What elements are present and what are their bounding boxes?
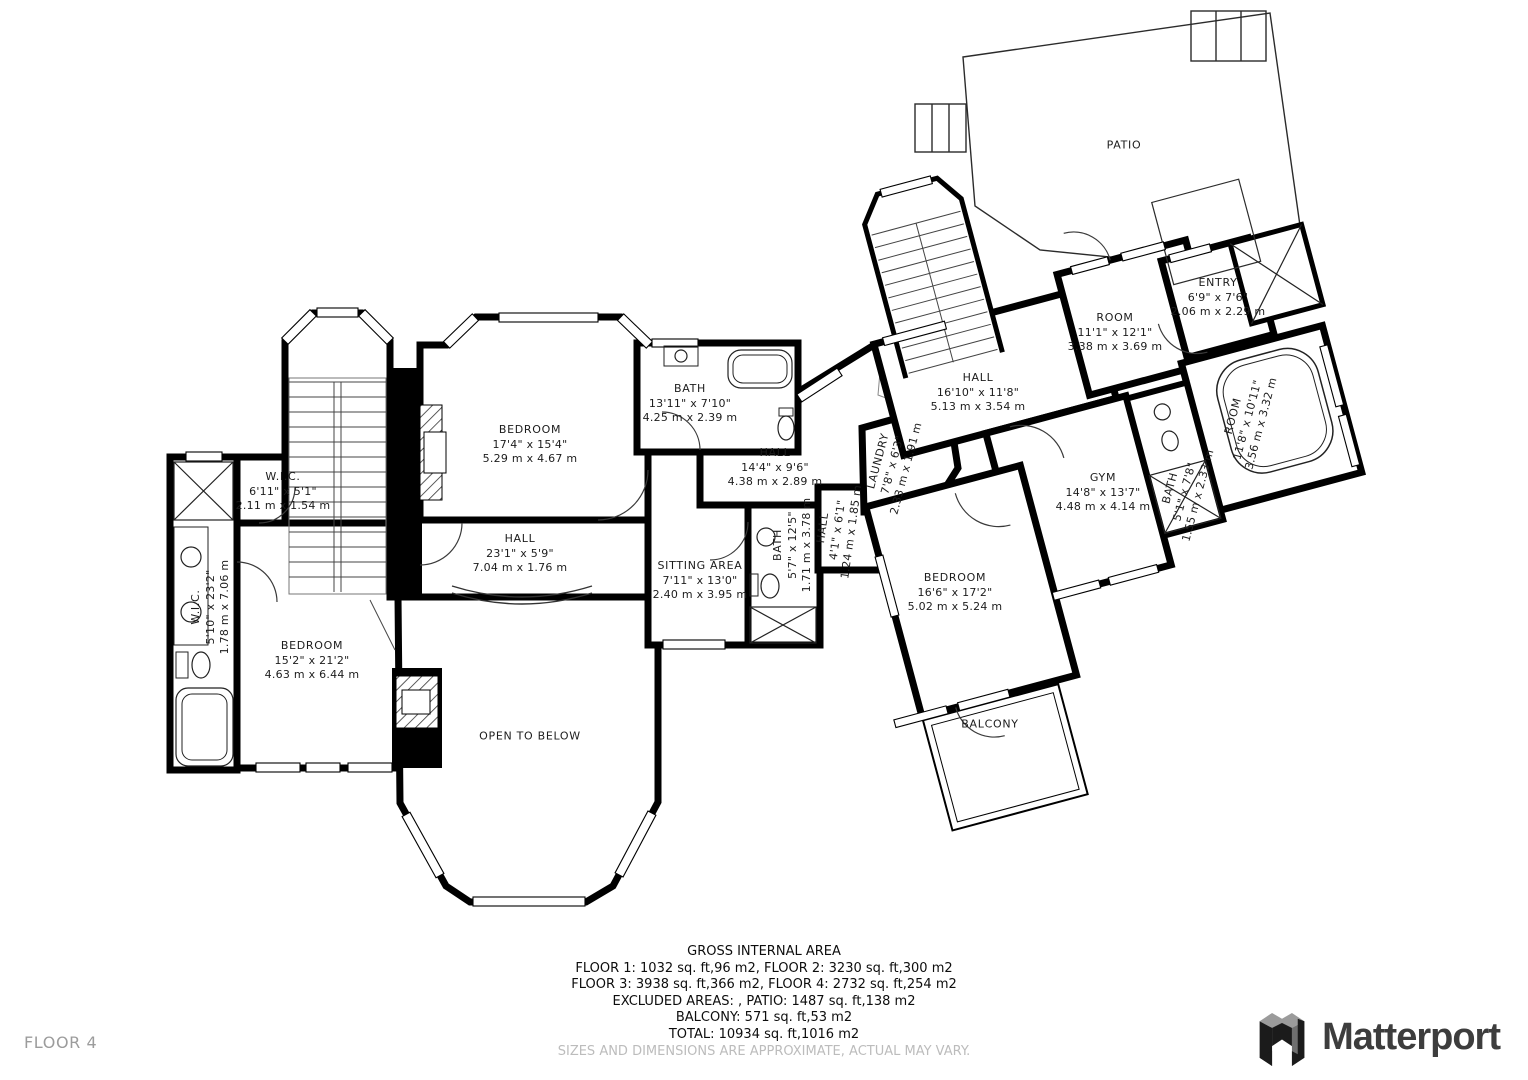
area-summary-line: BALCONY: 571 sq. ft,53 m2 [558,1010,971,1027]
area-summary: GROSS INTERNAL AREA FLOOR 1: 1032 sq. ft… [558,944,971,1060]
patio-outline [915,11,1303,262]
floor-plan-drawing [0,0,1528,1080]
matterport-logo-icon [1254,1008,1310,1066]
area-summary-line: FLOOR 3: 3938 sq. ft,366 m2, FLOOR 4: 27… [558,977,971,994]
matterport-logo-text: Matterport [1322,1016,1500,1059]
area-summary-lines: FLOOR 1: 1032 sq. ft,96 m2, FLOOR 2: 323… [558,961,971,1044]
left-wing-walls [170,313,958,902]
area-summary-line: TOTAL: 10934 sq. ft,1016 m2 [558,1027,971,1044]
matterport-brand: Matterport [1254,1008,1500,1066]
area-summary-line: FLOOR 1: 1032 sq. ft,96 m2, FLOOR 2: 323… [558,961,971,978]
area-summary-line: EXCLUDED AREAS: , PATIO: 1487 sq. ft,138… [558,994,971,1011]
area-summary-title: GROSS INTERNAL AREA [558,944,971,961]
disclaimer-text: SIZES AND DIMENSIONS ARE APPROXIMATE, AC… [558,1044,971,1061]
floor-label: FLOOR 4 [24,1033,97,1052]
